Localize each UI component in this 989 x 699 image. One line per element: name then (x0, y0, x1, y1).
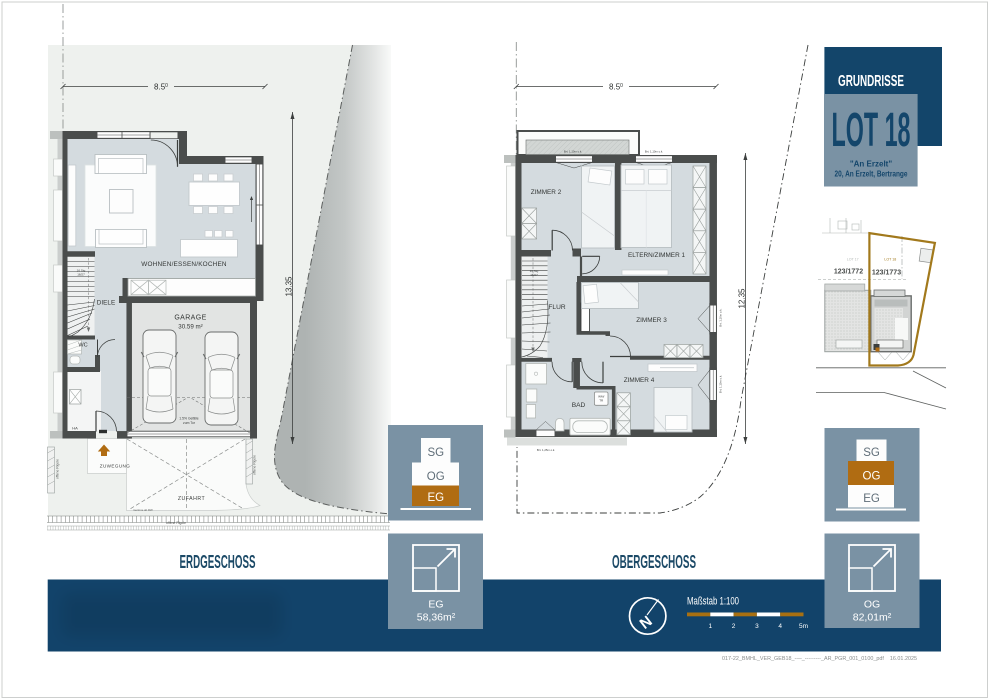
svg-text:ZIMMER 3: ZIMMER 3 (636, 317, 667, 324)
svg-text:HA: HA (72, 426, 78, 431)
svg-text:GRUNDRISSE: GRUNDRISSE (838, 73, 904, 90)
svg-text:offene Rigole: offene Rigole (56, 459, 60, 479)
svg-text:GARAGE: GARAGE (174, 315, 206, 322)
svg-text:WC: WC (78, 343, 87, 349)
svg-text:ZUWEGUNG: ZUWEGUNG (100, 464, 131, 469)
svg-text:ERDGESCHOSS: ERDGESCHOSS (180, 552, 256, 572)
svg-text:FLUR: FLUR (548, 304, 565, 311)
svg-text:SG: SG (427, 447, 444, 459)
svg-text:12.35: 12.35 (737, 288, 746, 309)
svg-text:Gerinne ab RW: Gerinne ab RW (133, 508, 153, 512)
svg-text:3: 3 (755, 623, 759, 630)
svg-text:BAD: BAD (572, 402, 586, 409)
svg-text:017-22_BMHL_VER_GEB18_-—_-----: 017-22_BMHL_VER_GEB18_-—_---------_AR_PG… (722, 656, 917, 662)
svg-text:18/27: 18/27 (77, 272, 85, 276)
svg-text:WOHNEN/ESSEN/KOCHEN: WOHNEN/ESSEN/KOCHEN (141, 261, 227, 268)
svg-text:18/27: 18/27 (530, 273, 538, 277)
svg-text:ZIMMER 4: ZIMMER 4 (624, 377, 655, 384)
svg-text:Maßstab 1:100: Maßstab 1:100 (687, 596, 739, 608)
svg-text:EG: EG (427, 492, 444, 504)
svg-text:1: 1 (708, 623, 712, 630)
svg-text:13.35: 13.35 (285, 276, 294, 297)
svg-text:EG: EG (428, 599, 443, 611)
svg-text:123/1773: 123/1773 (872, 270, 901, 277)
svg-text:OG: OG (427, 471, 445, 483)
svg-text:"An Erzelt": "An Erzelt" (850, 160, 892, 169)
svg-text:offene Rigole: offene Rigole (166, 521, 186, 525)
svg-text:20, An Erzelt, Bertrange: 20, An Erzelt, Bertrange (835, 170, 908, 179)
svg-text:Brt. 1,10m o.k.: Brt. 1,10m o.k. (719, 308, 723, 326)
svg-text:OBERGESCHOSS: OBERGESCHOSS (612, 552, 696, 572)
svg-text:Brt. 1,25m o.k.: Brt. 1,25m o.k. (537, 448, 555, 452)
svg-text:DIELE: DIELE (97, 300, 115, 307)
svg-text:LOT 17: LOT 17 (847, 258, 859, 262)
svg-text:Brt. 1,10m o.k.: Brt. 1,10m o.k. (645, 150, 663, 154)
svg-text:EG: EG (863, 493, 880, 505)
svg-text:ELTERN/ZIMMER 1: ELTERN/ZIMMER 1 (628, 252, 685, 259)
svg-text:LOT 18: LOT 18 (884, 258, 896, 262)
svg-text:2: 2 (732, 623, 736, 630)
svg-text:82,01m²: 82,01m² (853, 612, 892, 624)
svg-text:8.50: 8.50 (609, 83, 623, 92)
svg-text:58,36m²: 58,36m² (417, 612, 456, 624)
svg-text:OG: OG (863, 471, 881, 483)
svg-text:123/1772: 123/1772 (834, 269, 863, 276)
svg-text:LOT 18: LOT 18 (832, 104, 911, 157)
svg-text:offene Rigole: offene Rigole (253, 455, 257, 475)
svg-text:ZUFAHRT: ZUFAHRT (178, 496, 206, 502)
svg-text:4: 4 (778, 623, 782, 630)
svg-text:Brt. 1,10m o.k.: Brt. 1,10m o.k. (564, 150, 582, 154)
svg-text:Brt. 1,10m o.k.: Brt. 1,10m o.k. (719, 375, 723, 393)
svg-text:ZIMMER 2: ZIMMER 2 (531, 189, 562, 196)
svg-text:zum Tor: zum Tor (183, 421, 196, 425)
svg-text:SG: SG (863, 447, 880, 459)
svg-text:OG: OG (864, 599, 880, 611)
svg-text:5m: 5m (799, 623, 808, 630)
svg-text:30.59 m²: 30.59 m² (178, 324, 202, 331)
